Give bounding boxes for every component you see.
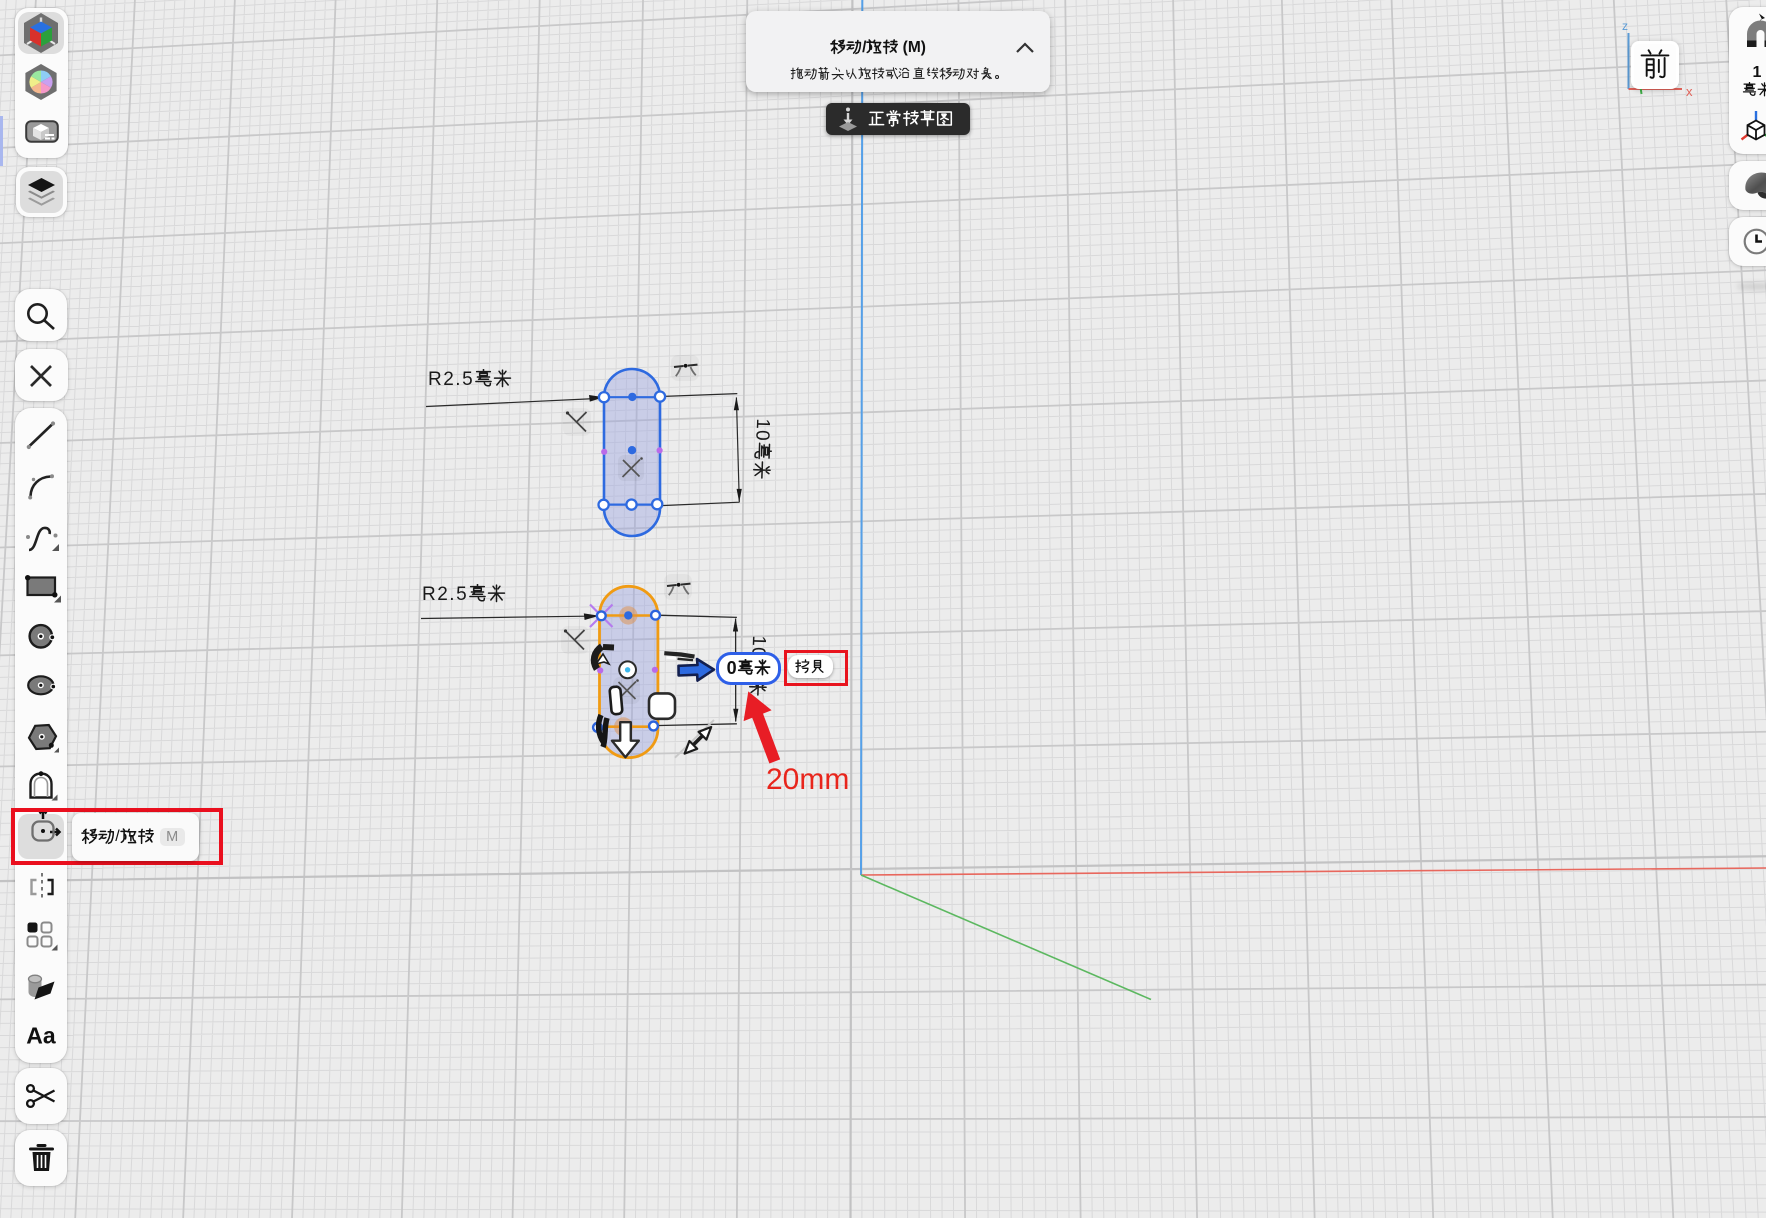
svg-text:z: z <box>1622 19 1628 33</box>
svg-text:x: x <box>1686 84 1693 99</box>
